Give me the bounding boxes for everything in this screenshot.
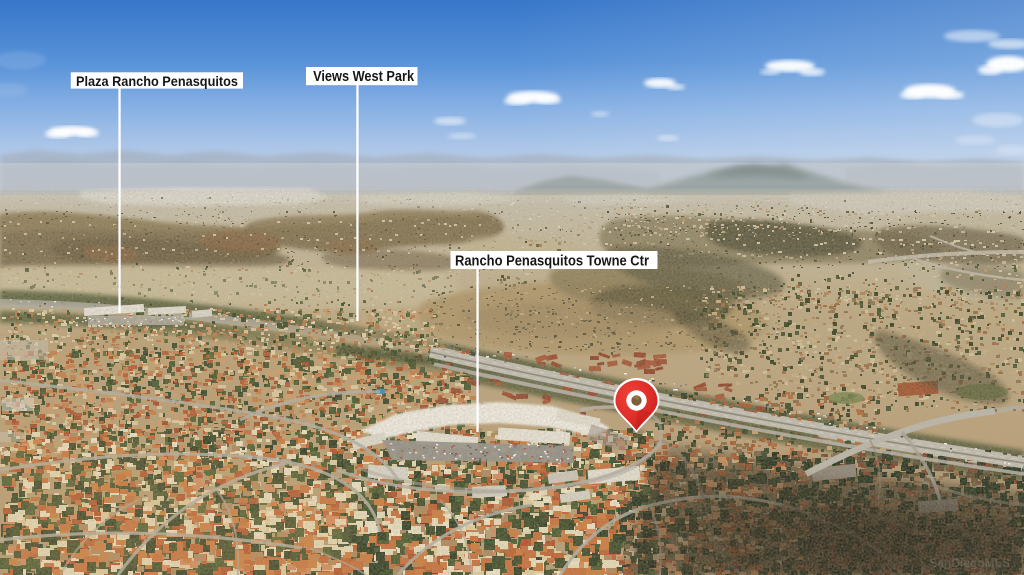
svg-text:SanDiegoMLS: SanDiegoMLS — [929, 556, 1010, 570]
svg-text:Views West Park: Views West Park — [313, 68, 415, 85]
svg-text:Plaza Rancho Penasquitos: Plaza Rancho Penasquitos — [76, 73, 238, 89]
svg-text:Rancho Penasquitos Towne Ctr: Rancho Penasquitos Towne Ctr — [455, 252, 649, 269]
